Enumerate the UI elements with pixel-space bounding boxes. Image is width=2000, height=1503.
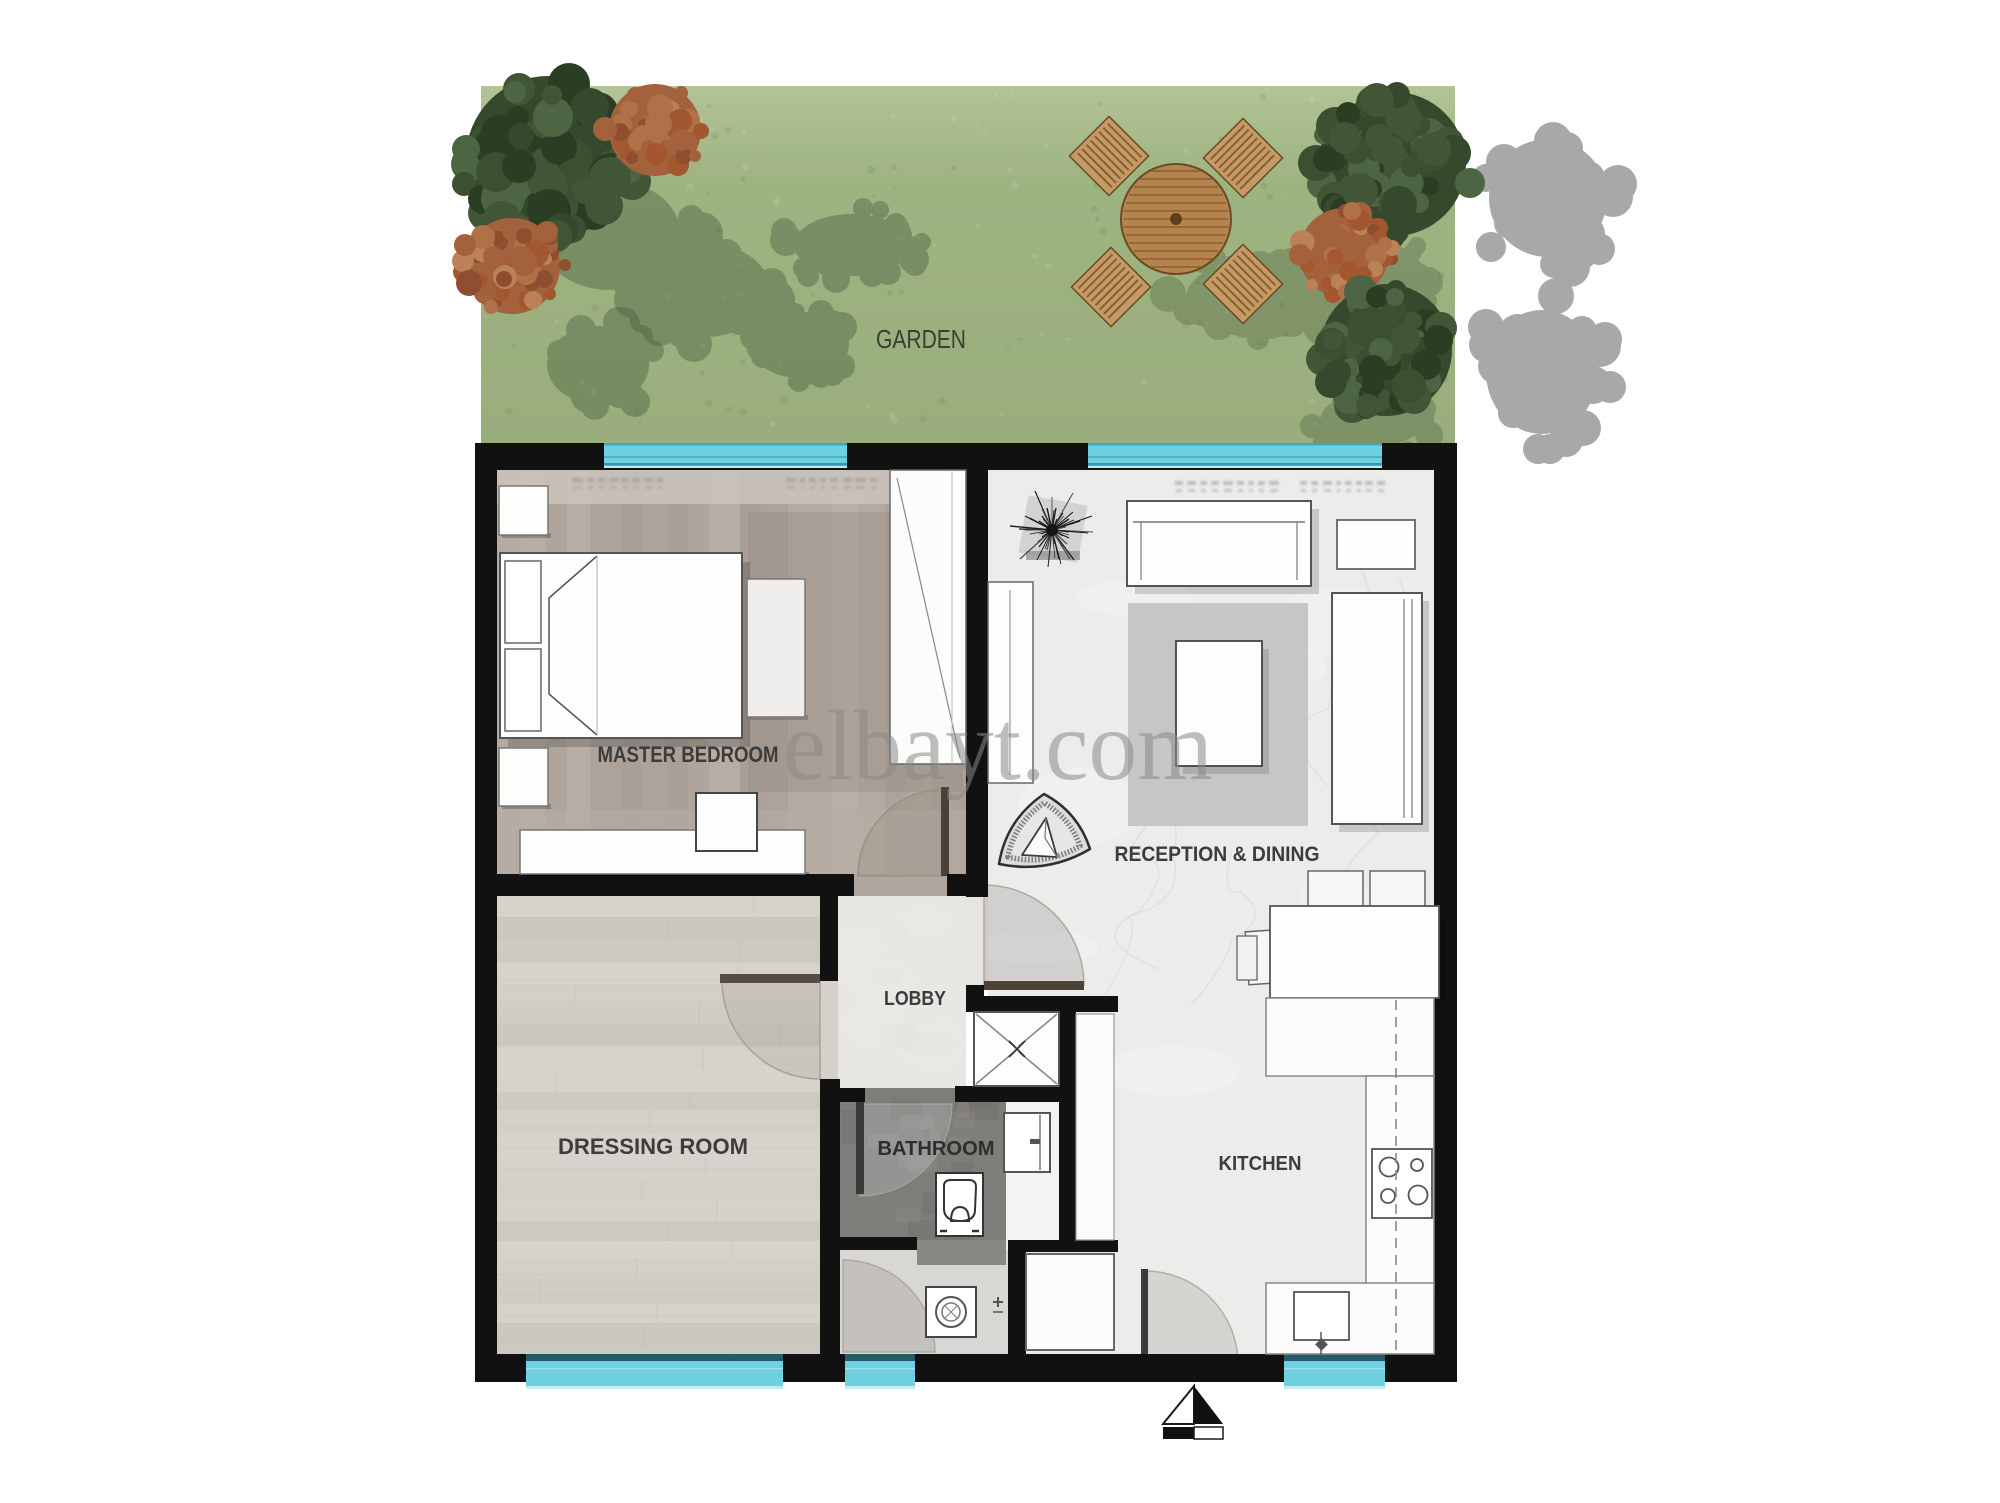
svg-text:GARDEN: GARDEN xyxy=(876,324,966,354)
svg-text:elbayt.com: elbayt.com xyxy=(783,690,1213,801)
svg-text:DRESSING ROOM: DRESSING ROOM xyxy=(558,1134,748,1159)
svg-text:MASTER BEDROOM: MASTER BEDROOM xyxy=(598,742,779,767)
svg-text:KITCHEN: KITCHEN xyxy=(1219,1153,1302,1175)
svg-text:RECEPTION & DINING: RECEPTION & DINING xyxy=(1115,843,1320,866)
svg-text:BATHROOM: BATHROOM xyxy=(878,1138,995,1160)
svg-text:LOBBY: LOBBY xyxy=(884,988,947,1010)
